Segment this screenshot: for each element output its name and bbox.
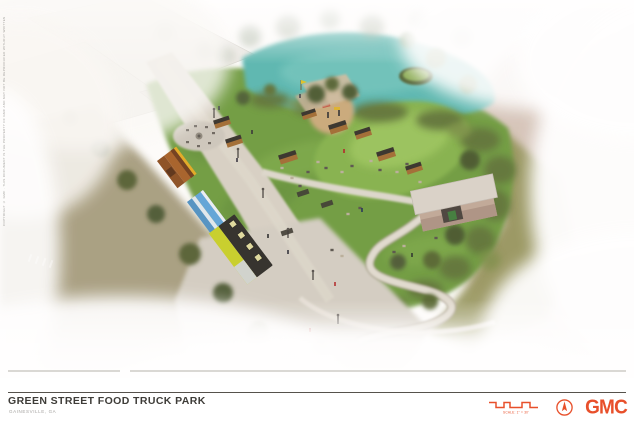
- aerial-rendering-svg: [0, 0, 634, 378]
- page-title: GREEN STREET FOOD TRUCK PARK: [8, 395, 206, 407]
- stepped-scale-line: [489, 403, 538, 408]
- brand-block: SCALE: 1" = 30' GMC: [488, 395, 627, 419]
- title-block-rule: [8, 392, 626, 393]
- render-edge-sliver-right: [130, 370, 626, 372]
- render-edge-sliver-left: [8, 370, 120, 372]
- north-arrow-compass-icon: [555, 398, 574, 417]
- copyright-sideways-text: COPYRIGHT © GMC · THIS DOCUMENT IS THE P…: [2, 16, 6, 226]
- page-location: GAINESVILLE, GA: [9, 409, 56, 414]
- scale-bar-mark: SCALE: 1" = 30': [488, 398, 544, 416]
- aerial-rendering: [0, 0, 634, 378]
- gmc-logo: GMC: [585, 397, 627, 417]
- scale-label: SCALE: 1" = 30': [503, 411, 529, 415]
- fog-vignette: [0, 0, 634, 378]
- presentation-board: COPYRIGHT © GMC · THIS DOCUMENT IS THE P…: [0, 0, 634, 423]
